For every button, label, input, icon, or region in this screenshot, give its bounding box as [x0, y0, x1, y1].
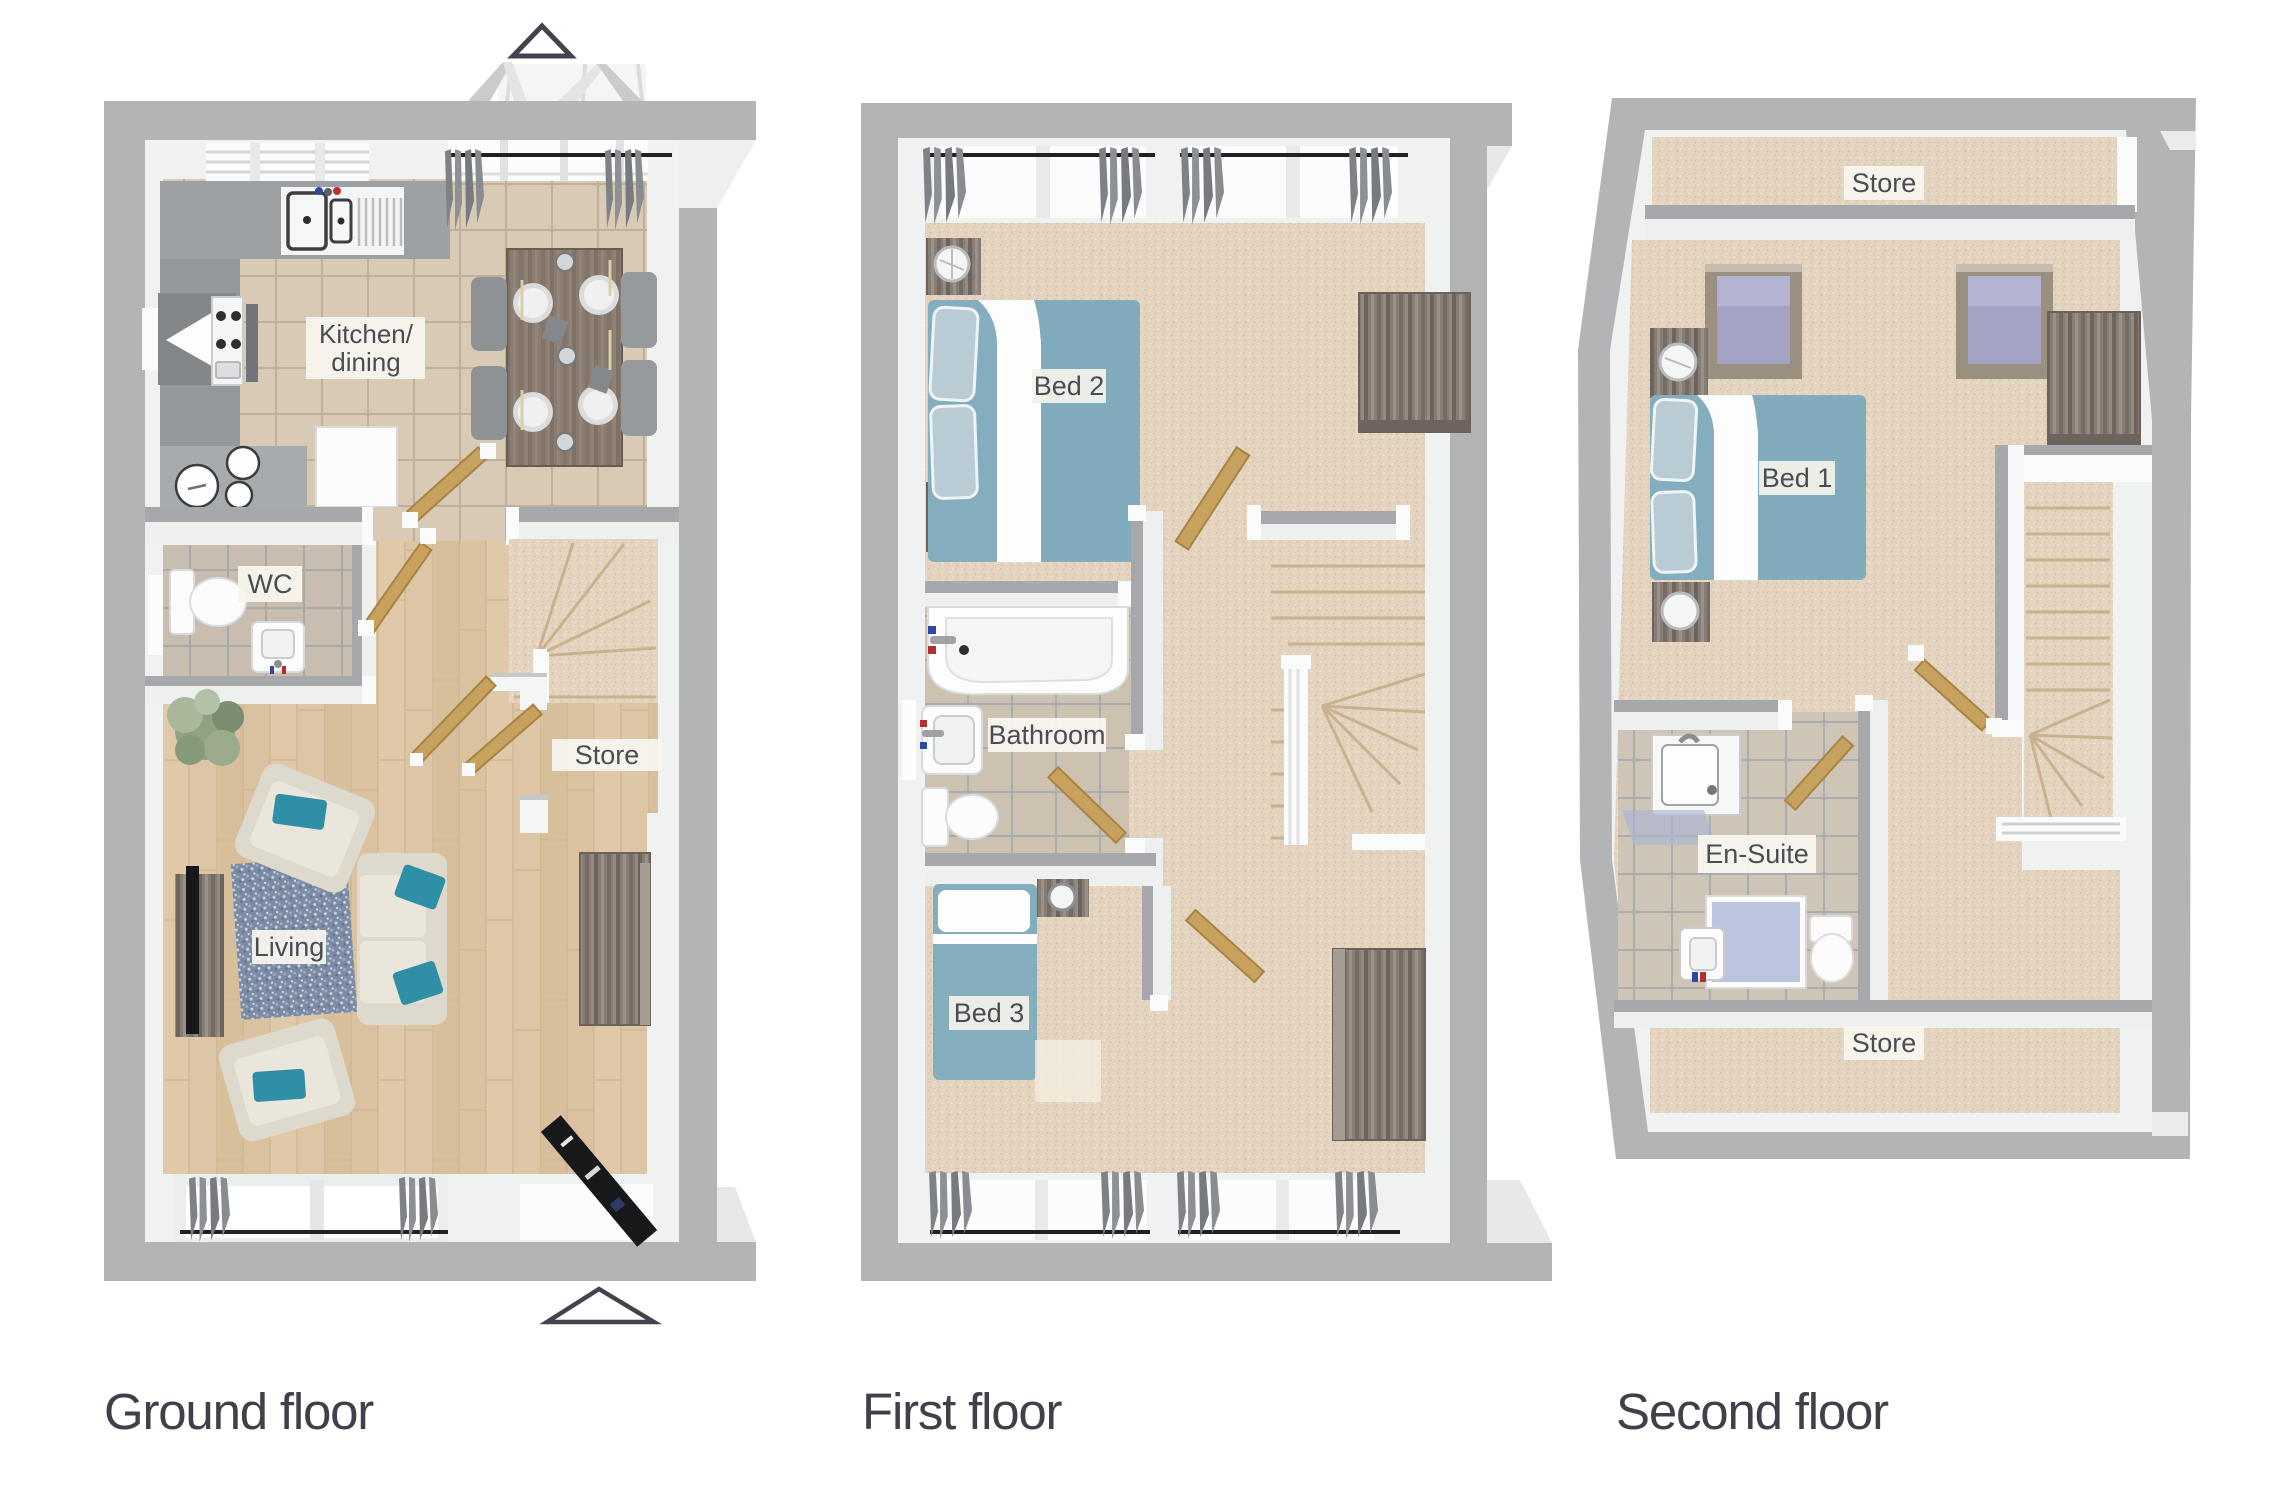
svg-text:Bathroom: Bathroom [988, 720, 1105, 750]
svg-text:En-Suite: En-Suite [1705, 839, 1809, 869]
svg-text:WC: WC [248, 569, 293, 599]
svg-text:Living: Living [254, 932, 325, 962]
svg-text:Store: Store [1852, 1028, 1917, 1058]
svg-text:Ground floor: Ground floor [104, 1383, 374, 1440]
svg-text:Bed 2: Bed 2 [1034, 371, 1105, 401]
svg-text:dining: dining [331, 347, 400, 377]
svg-text:Bed 1: Bed 1 [1762, 463, 1833, 493]
svg-text:Store: Store [575, 740, 640, 770]
svg-text:First floor: First floor [862, 1383, 1063, 1440]
svg-text:Kitchen/: Kitchen/ [319, 319, 414, 349]
svg-text:Bed 3: Bed 3 [954, 998, 1025, 1028]
svg-text:Second floor: Second floor [1616, 1383, 1889, 1440]
svg-text:Store: Store [1852, 168, 1917, 198]
